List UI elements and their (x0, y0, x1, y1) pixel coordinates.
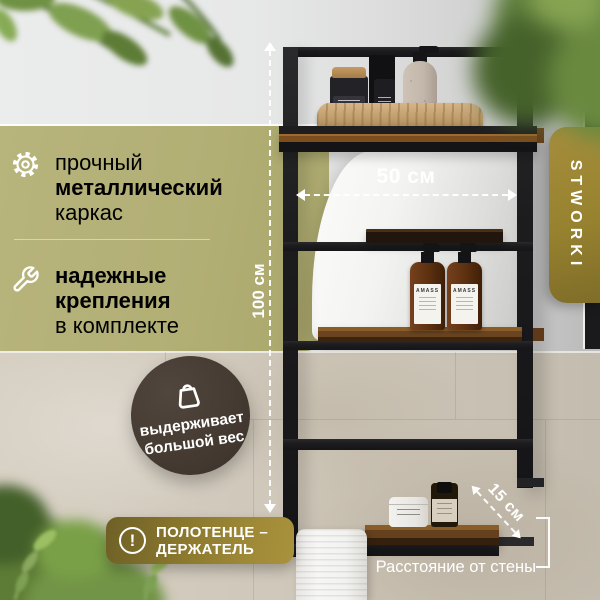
bottle-brand-text: AMASS (453, 288, 476, 294)
wall-distance-label: Расстояние от стены (373, 558, 536, 577)
white-towel (296, 529, 367, 600)
exclamation-mark: ! (130, 531, 136, 551)
tile-seam (253, 420, 254, 600)
towel-badge-line: ПОЛОТЕНЦЕ – (156, 524, 268, 541)
feature-line: в комплекте (55, 313, 179, 338)
bottle-label: AMASS (414, 284, 441, 324)
bottle-label (432, 499, 457, 522)
feature-line: прочный (55, 150, 223, 175)
amber-soap-bottle: AMASS (447, 262, 482, 330)
shelf-level-5-wood (365, 525, 499, 545)
arrow-up-icon (264, 42, 276, 51)
frame-right-post (517, 47, 533, 488)
width-dimension-line (304, 194, 508, 196)
height-dimension-label: 100 см (249, 256, 269, 326)
feature-divider (14, 239, 210, 240)
feature-line: металлический (55, 175, 223, 200)
wrench-icon (11, 265, 40, 294)
tile-seam (455, 352, 456, 419)
frame-crossbar-4 (283, 439, 533, 450)
dark-dropper-bottle (431, 483, 458, 527)
feature-line: каркас (55, 200, 223, 225)
shelf-depth-wood (533, 328, 544, 341)
height-dimension-line (269, 50, 271, 506)
feature-line: надежные (55, 263, 179, 288)
feature-line: крепления (55, 288, 179, 313)
width-dimension-label: 50 см (298, 165, 514, 189)
baseboard-line (0, 351, 600, 353)
frame-crossbar-2 (283, 242, 533, 251)
bottle-pump-icon (423, 243, 440, 252)
bottle-pump-collar (458, 252, 471, 263)
feature-item-frame: прочный металлический каркас (55, 150, 223, 225)
bottle-label: AMASS (451, 284, 478, 324)
bottle-pump-collar (421, 252, 434, 263)
frame-post-foot (517, 478, 544, 487)
arrow-left-icon (296, 189, 305, 201)
weight-icon (169, 376, 207, 412)
brand-logo: STWORKI (566, 160, 584, 271)
arrow-right-icon (508, 189, 517, 201)
brand-banner: STWORKI (549, 127, 600, 303)
bottle-pump-icon (460, 243, 477, 252)
product-infographic: AMASS AMASS прочный металлический каркас… (0, 0, 600, 600)
white-cream-jar (389, 497, 428, 527)
bottle-cap (437, 482, 452, 493)
feature-item-mounts: надежные крепления в комплекте (55, 263, 179, 338)
frame-crossbar-3 (283, 341, 533, 350)
shelf-level-2-plank (366, 229, 503, 243)
candle-cork-lid (332, 67, 366, 78)
frame-top-bar (283, 47, 533, 57)
bottle-brand-text: AMASS (416, 288, 439, 294)
gear-icon (12, 151, 39, 178)
towel-badge-line: ДЕРЖАТЕЛЬ (156, 541, 268, 558)
tile-seam (545, 420, 546, 600)
exclamation-icon: ! (119, 527, 146, 554)
wall-distance-bracket (536, 517, 550, 568)
frame-left-post (283, 47, 298, 557)
arrow-down-icon (264, 504, 276, 513)
shelf-level-1 (279, 126, 537, 152)
amber-soap-bottle: AMASS (410, 262, 445, 330)
towel-holder-badge: ! ПОЛОТЕНЦЕ – ДЕРЖАТЕЛЬ (106, 517, 294, 564)
